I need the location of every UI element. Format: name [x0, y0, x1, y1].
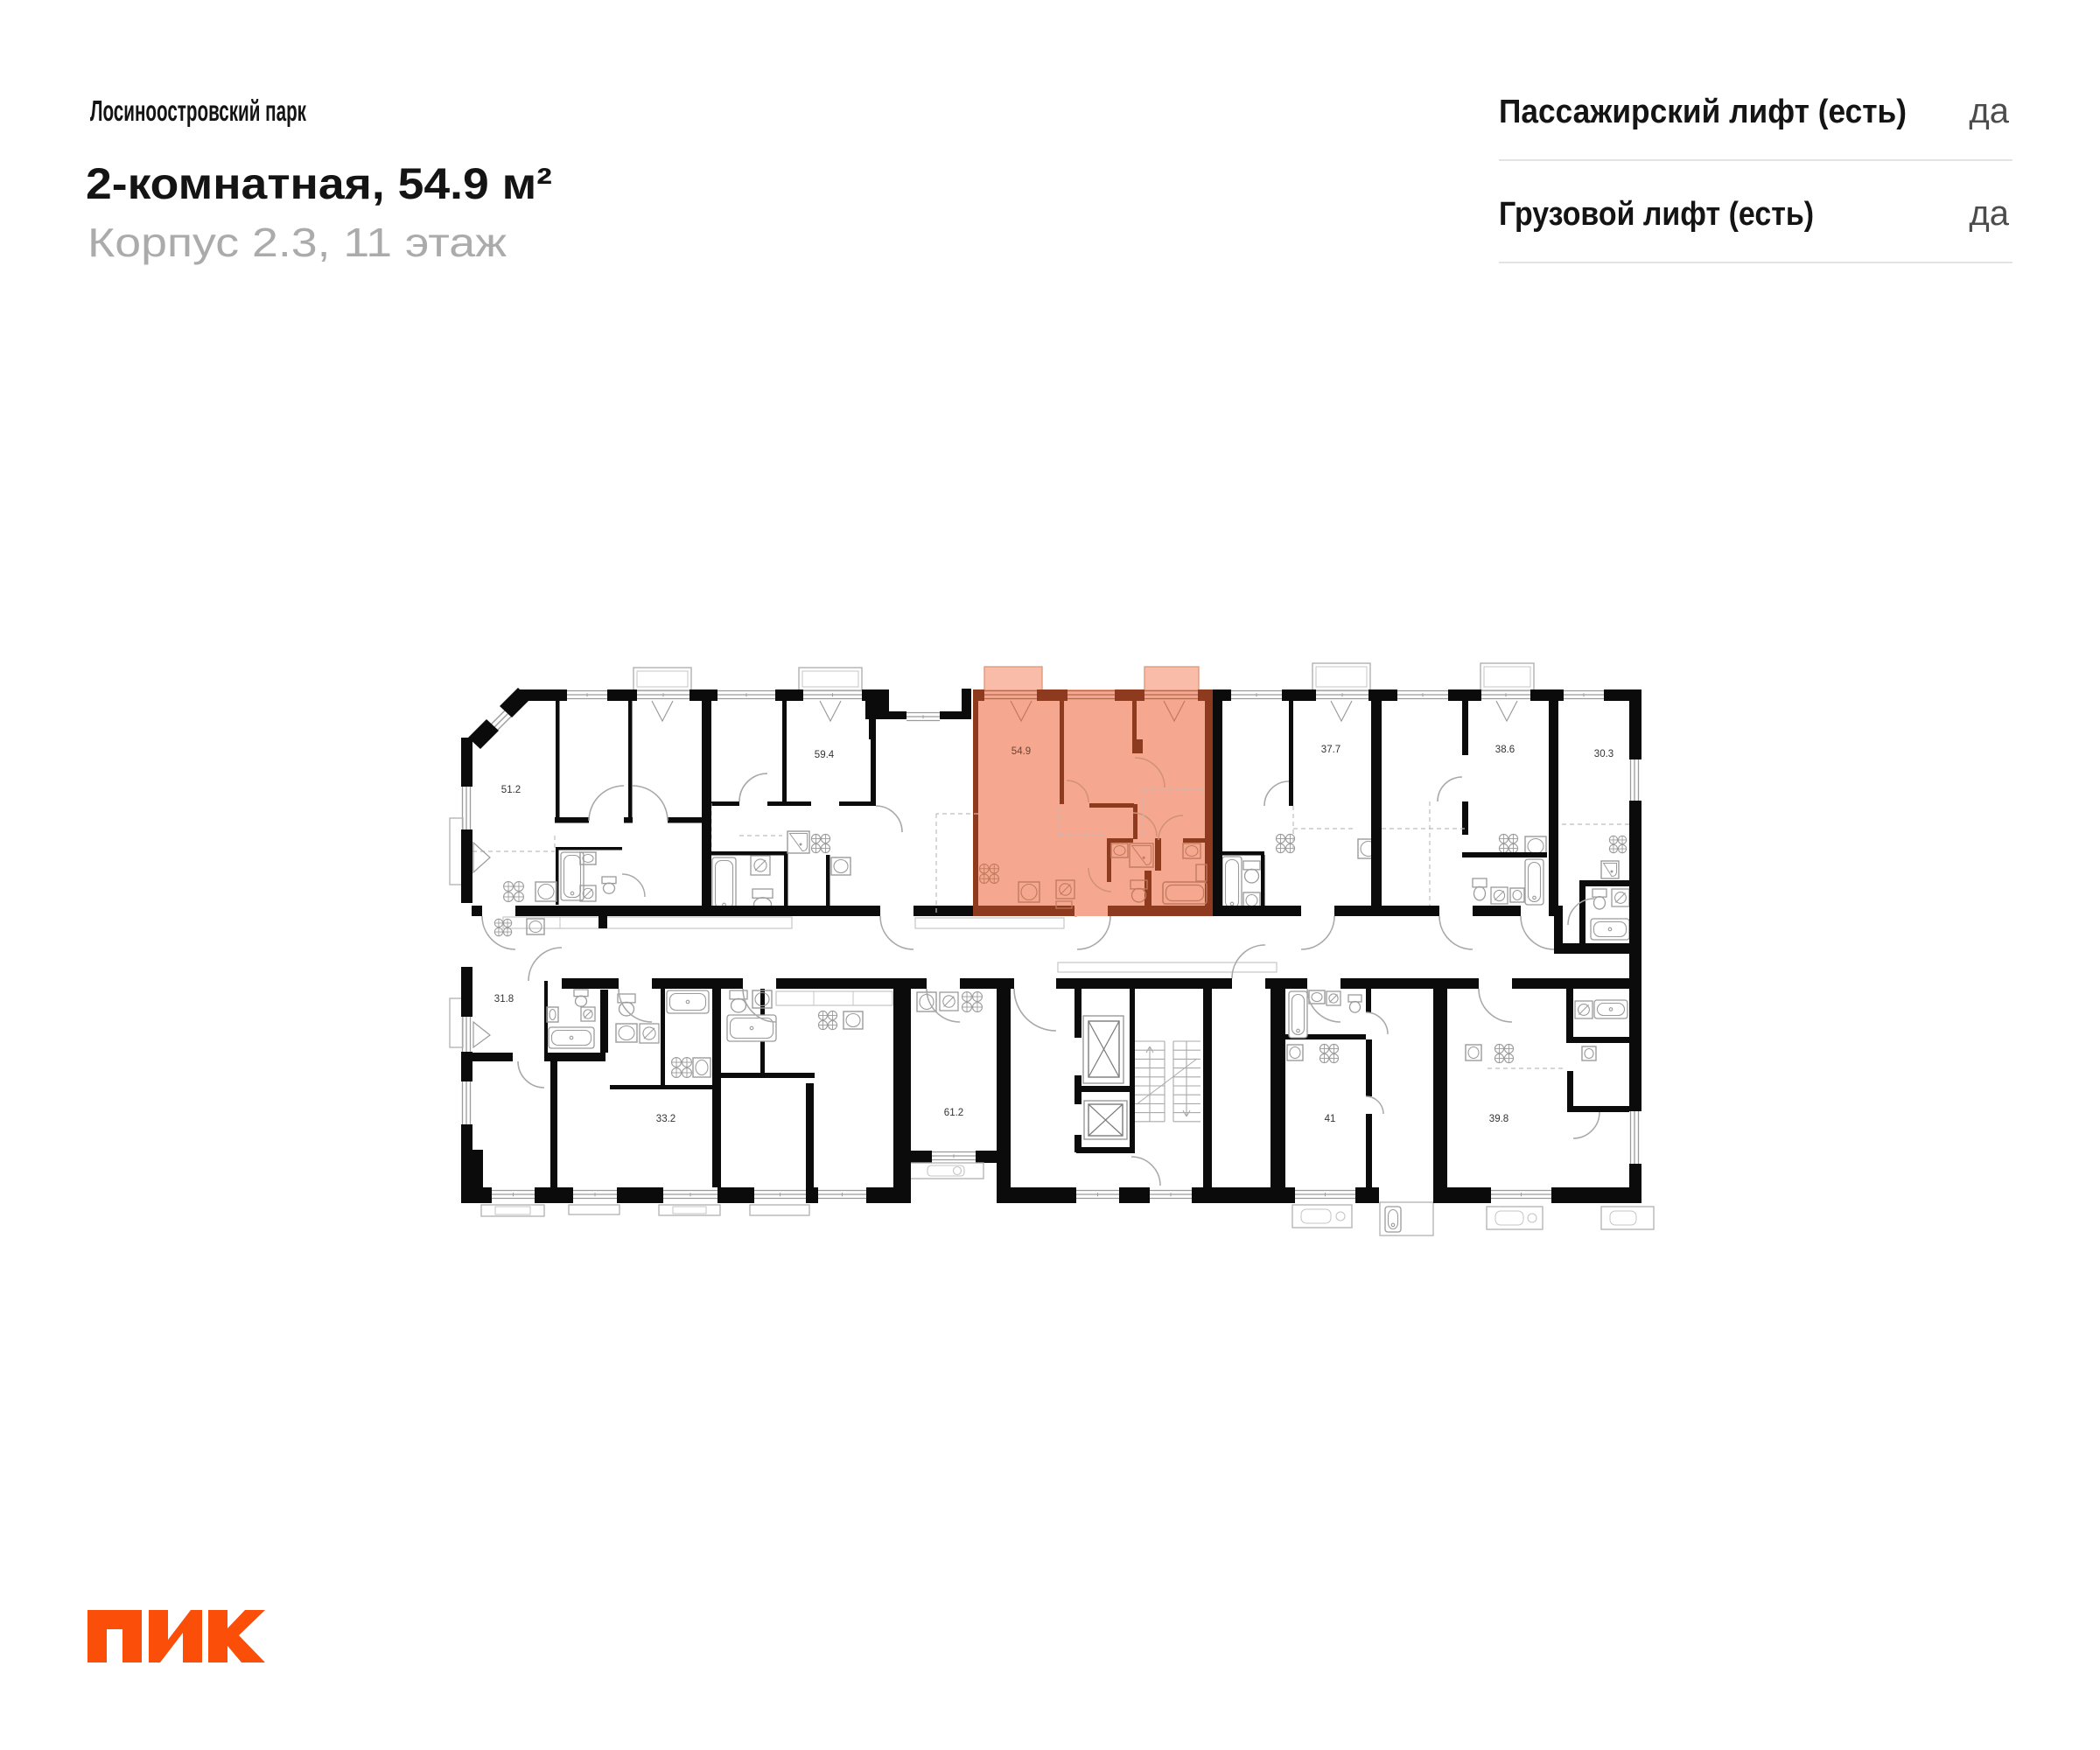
svg-text:2-комнатная, 54.9 м²: 2-комнатная, 54.9 м²: [86, 159, 552, 208]
svg-text:54.9: 54.9: [1011, 746, 1031, 757]
svg-text:Грузовой лифт (есть): Грузовой лифт (есть): [1499, 196, 1814, 233]
svg-text:41: 41: [1325, 1114, 1336, 1124]
svg-text:да: да: [1969, 194, 2009, 233]
svg-text:38.6: 38.6: [1495, 745, 1515, 755]
svg-text:да: да: [1969, 92, 2009, 130]
svg-text:39.8: 39.8: [1489, 1114, 1508, 1124]
svg-text:30.3: 30.3: [1594, 749, 1613, 759]
svg-text:Пассажирский лифт (есть): Пассажирский лифт (есть): [1499, 94, 1907, 130]
svg-text:33.2: 33.2: [656, 1114, 675, 1124]
svg-text:61.2: 61.2: [944, 1108, 963, 1118]
svg-text:51.2: 51.2: [501, 785, 521, 795]
svg-text:37.7: 37.7: [1321, 745, 1340, 755]
svg-text:Лосиноостровский парк: Лосиноостровский парк: [90, 94, 306, 127]
svg-text:31.8: 31.8: [494, 994, 514, 1004]
svg-text:Корпус 2.3, 11 этаж: Корпус 2.3, 11 этаж: [87, 220, 507, 265]
svg-text:59.4: 59.4: [815, 750, 835, 760]
